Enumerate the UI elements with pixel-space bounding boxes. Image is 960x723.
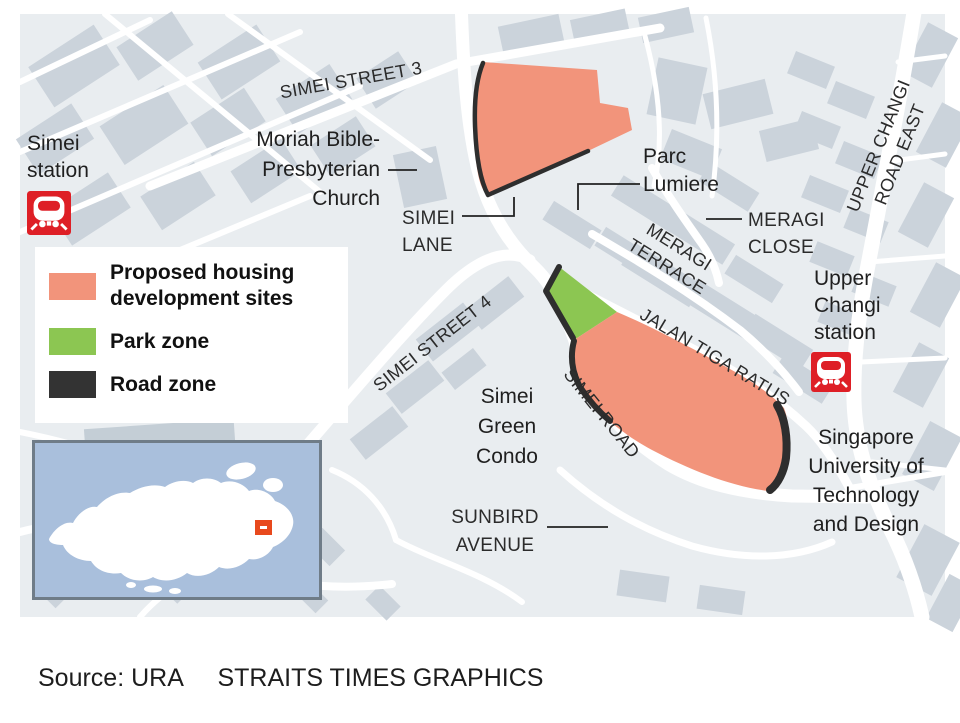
label-parc-lumiere-line2: Lumiere: [643, 173, 719, 196]
label-moriah-church-line2: Presbyterian: [262, 158, 380, 181]
label-simei-green-condo-line2: Green: [478, 415, 536, 438]
road-label-meragi-close-line1: MERAGI: [748, 210, 825, 231]
road-label-meragi-close-line2: CLOSE: [748, 237, 814, 258]
legend-label-housing: Proposed housing development sites: [110, 260, 334, 312]
label-sutd-line3: Technology: [813, 484, 920, 507]
legend-item-park: Park zone: [49, 328, 334, 355]
road-label-simei-lane-line1: SIMEI: [402, 208, 455, 229]
road-label-sunbird-avenue-line2: AVENUE: [456, 535, 535, 556]
legend-swatch-housing: [49, 273, 96, 300]
label-sutd-line2: University of: [808, 455, 924, 478]
label-sutd-line1: Singapore: [818, 426, 914, 449]
inset-map: [32, 440, 322, 600]
label-parc-lumiere-line1: Parc: [643, 145, 686, 168]
source-line: Source: URA STRAITS TIMES GRAPHICS: [38, 664, 543, 693]
legend-item-road: Road zone: [49, 371, 334, 398]
road-label-sunbird-avenue-line1: SUNBIRD: [451, 507, 539, 528]
legend: Proposed housing development sites Park …: [35, 247, 348, 423]
inset-marker-dash: [260, 526, 267, 529]
label-simei-station-line1: Simei: [27, 132, 80, 155]
credit-text: STRAITS TIMES GRAPHICS: [217, 664, 543, 692]
label-upper-changi-station-line3: station: [814, 321, 876, 344]
label-moriah-church-line1: Moriah Bible-: [256, 128, 380, 151]
mrt-icon-simei: [27, 191, 71, 235]
inset-island-s-3: [126, 582, 136, 588]
legend-swatch-road: [49, 371, 96, 398]
label-upper-changi-station-line1: Upper: [814, 267, 871, 290]
legend-label-park: Park zone: [110, 329, 209, 355]
source-text: Source: URA: [38, 664, 183, 692]
label-upper-changi-station-line2: Changi: [814, 294, 881, 317]
label-simei-green-condo-line3: Condo: [476, 445, 538, 468]
inset-island-ne-1: [225, 460, 258, 483]
mrt-icon-upper-changi: [811, 352, 851, 392]
label-simei-green-condo-line1: Simei: [481, 385, 534, 408]
label-simei-station-line2: station: [27, 159, 89, 182]
inset-map-canvas: [35, 443, 319, 597]
inset-island-ne-2: [263, 478, 283, 492]
inset-island-s-2: [169, 588, 181, 594]
inset-island-s-1: [144, 586, 162, 593]
road-label-simei-lane-line2: LANE: [402, 235, 453, 256]
map-graphic: SIMEI STREET 3 SIMEI LANE SIMEI STREET 4…: [0, 0, 960, 718]
label-sutd-line4: and Design: [813, 513, 919, 536]
legend-swatch-park: [49, 328, 96, 355]
legend-item-housing: Proposed housing development sites: [49, 260, 334, 312]
label-moriah-church-line3: Church: [312, 187, 380, 210]
legend-label-road: Road zone: [110, 372, 216, 398]
